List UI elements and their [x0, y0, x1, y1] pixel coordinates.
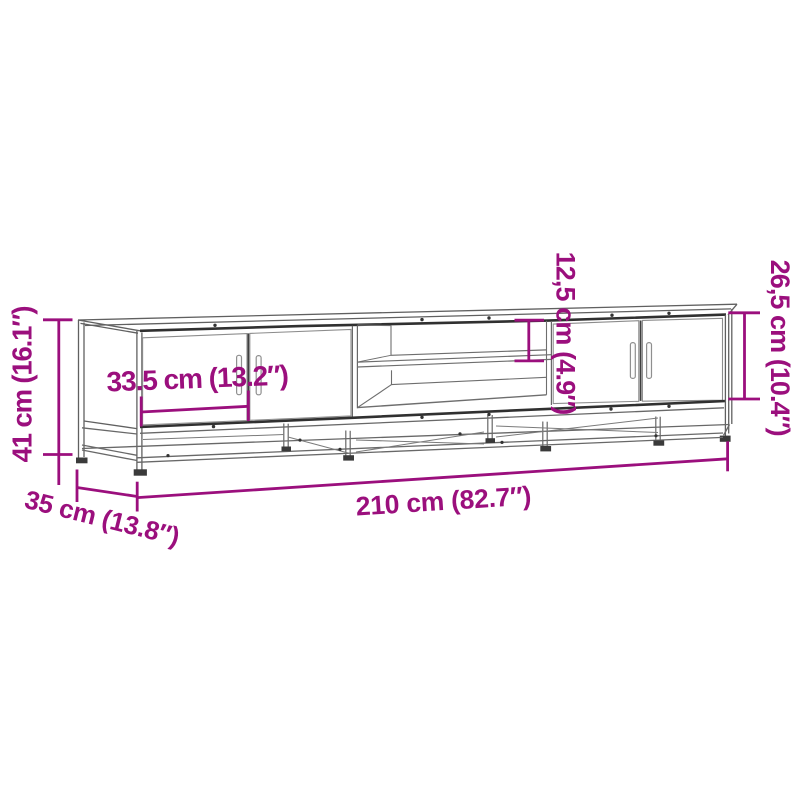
svg-text:41 cm (16.1″): 41 cm (16.1″) — [7, 307, 38, 463]
svg-text:12,5 cm (4.9″): 12,5 cm (4.9″) — [551, 252, 581, 415]
svg-text:26,5 cm (10.4″): 26,5 cm (10.4″) — [765, 260, 795, 436]
